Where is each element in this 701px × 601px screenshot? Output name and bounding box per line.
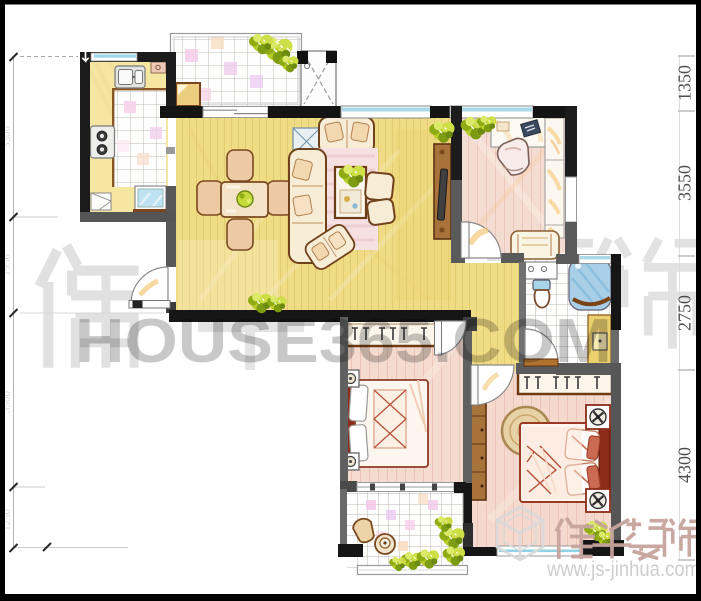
svg-text:www.js-jinhua.com: www.js-jinhua.com — [546, 558, 700, 581]
svg-text:3550: 3550 — [675, 165, 695, 201]
svg-text:4300: 4300 — [675, 447, 695, 483]
svg-text:2750: 2750 — [675, 295, 695, 331]
svg-text:HOUSE365.COM: HOUSE365.COM — [75, 307, 612, 376]
svg-text:1350: 1350 — [675, 65, 695, 101]
